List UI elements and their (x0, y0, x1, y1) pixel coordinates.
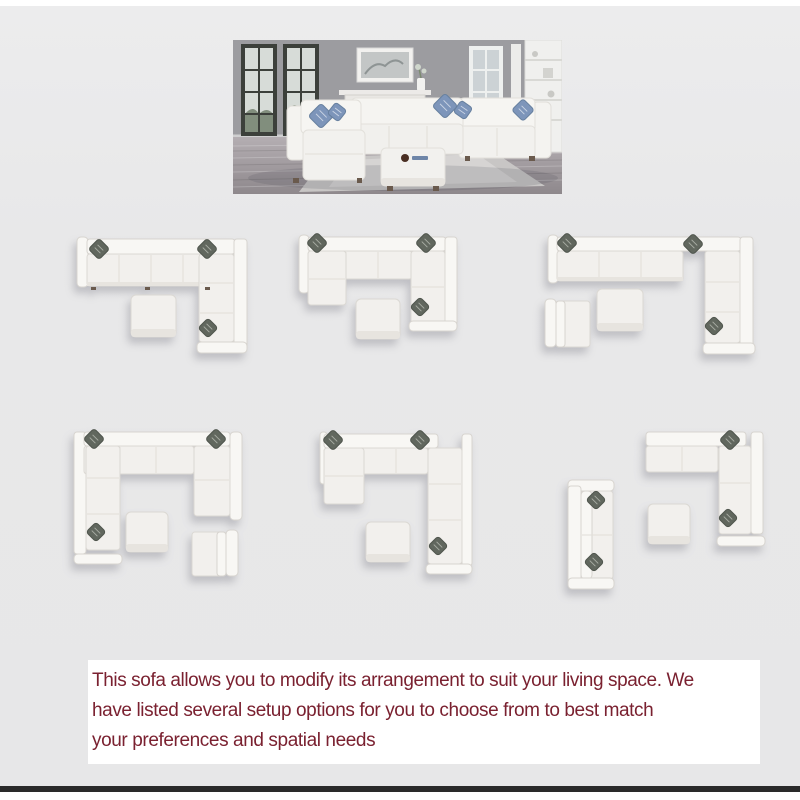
left-window-icon (241, 44, 277, 136)
armless-chair (192, 530, 238, 576)
decor-bottle-icon (401, 154, 409, 162)
arrangement-figure-2 (298, 227, 458, 349)
living-room-graphic (233, 40, 562, 194)
caption-line-3: your preferences and spatial needs (92, 726, 756, 756)
arrangement-figure-3 (543, 227, 758, 357)
wall-art-icon (357, 48, 413, 82)
armless-chair (545, 299, 590, 347)
decor-tray-icon (412, 156, 428, 160)
loveseat (568, 480, 614, 589)
arrangement-figure-4 (66, 428, 250, 580)
caption-line-2: have listed several setup options for yo… (92, 696, 756, 726)
caption-box: This sofa allows you to modify its arran… (88, 660, 760, 764)
arrangement-figure-6 (558, 428, 764, 596)
arrangement-figure-5 (320, 426, 472, 578)
caption-line-1: This sofa allows you to modify its arran… (92, 666, 756, 696)
product-image: This sofa allows you to modify its arran… (0, 0, 800, 800)
bottom-bar (0, 786, 800, 792)
hero-photo (233, 40, 562, 194)
arrangement-figure-1 (75, 227, 253, 355)
